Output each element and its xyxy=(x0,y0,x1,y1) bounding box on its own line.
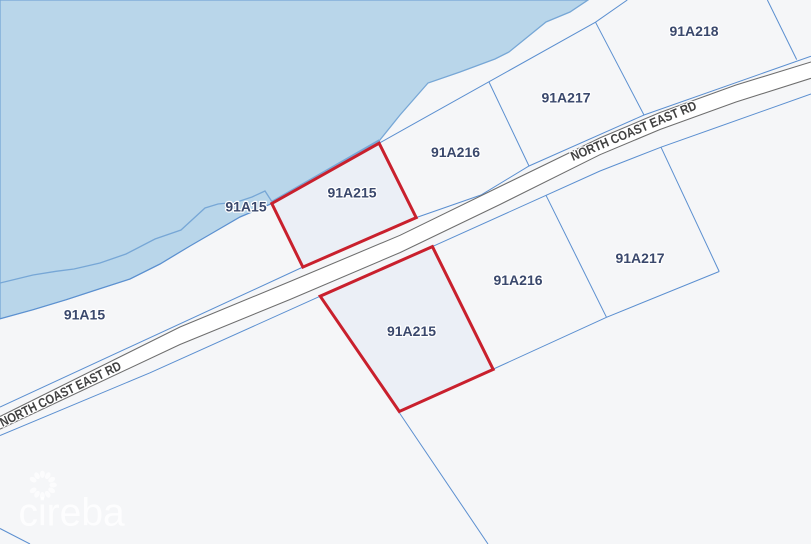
svg-text:91A218: 91A218 xyxy=(669,23,718,39)
svg-text:91A217: 91A217 xyxy=(541,90,590,106)
svg-text:91A216: 91A216 xyxy=(431,144,480,160)
svg-text:cireba: cireba xyxy=(19,492,126,535)
svg-text:91A215: 91A215 xyxy=(327,185,376,201)
svg-text:91A216: 91A216 xyxy=(493,272,542,288)
svg-text:91A217: 91A217 xyxy=(615,250,664,266)
svg-text:91A15: 91A15 xyxy=(64,307,105,323)
svg-text:91A215: 91A215 xyxy=(387,323,436,339)
svg-text:91A15: 91A15 xyxy=(225,199,266,215)
